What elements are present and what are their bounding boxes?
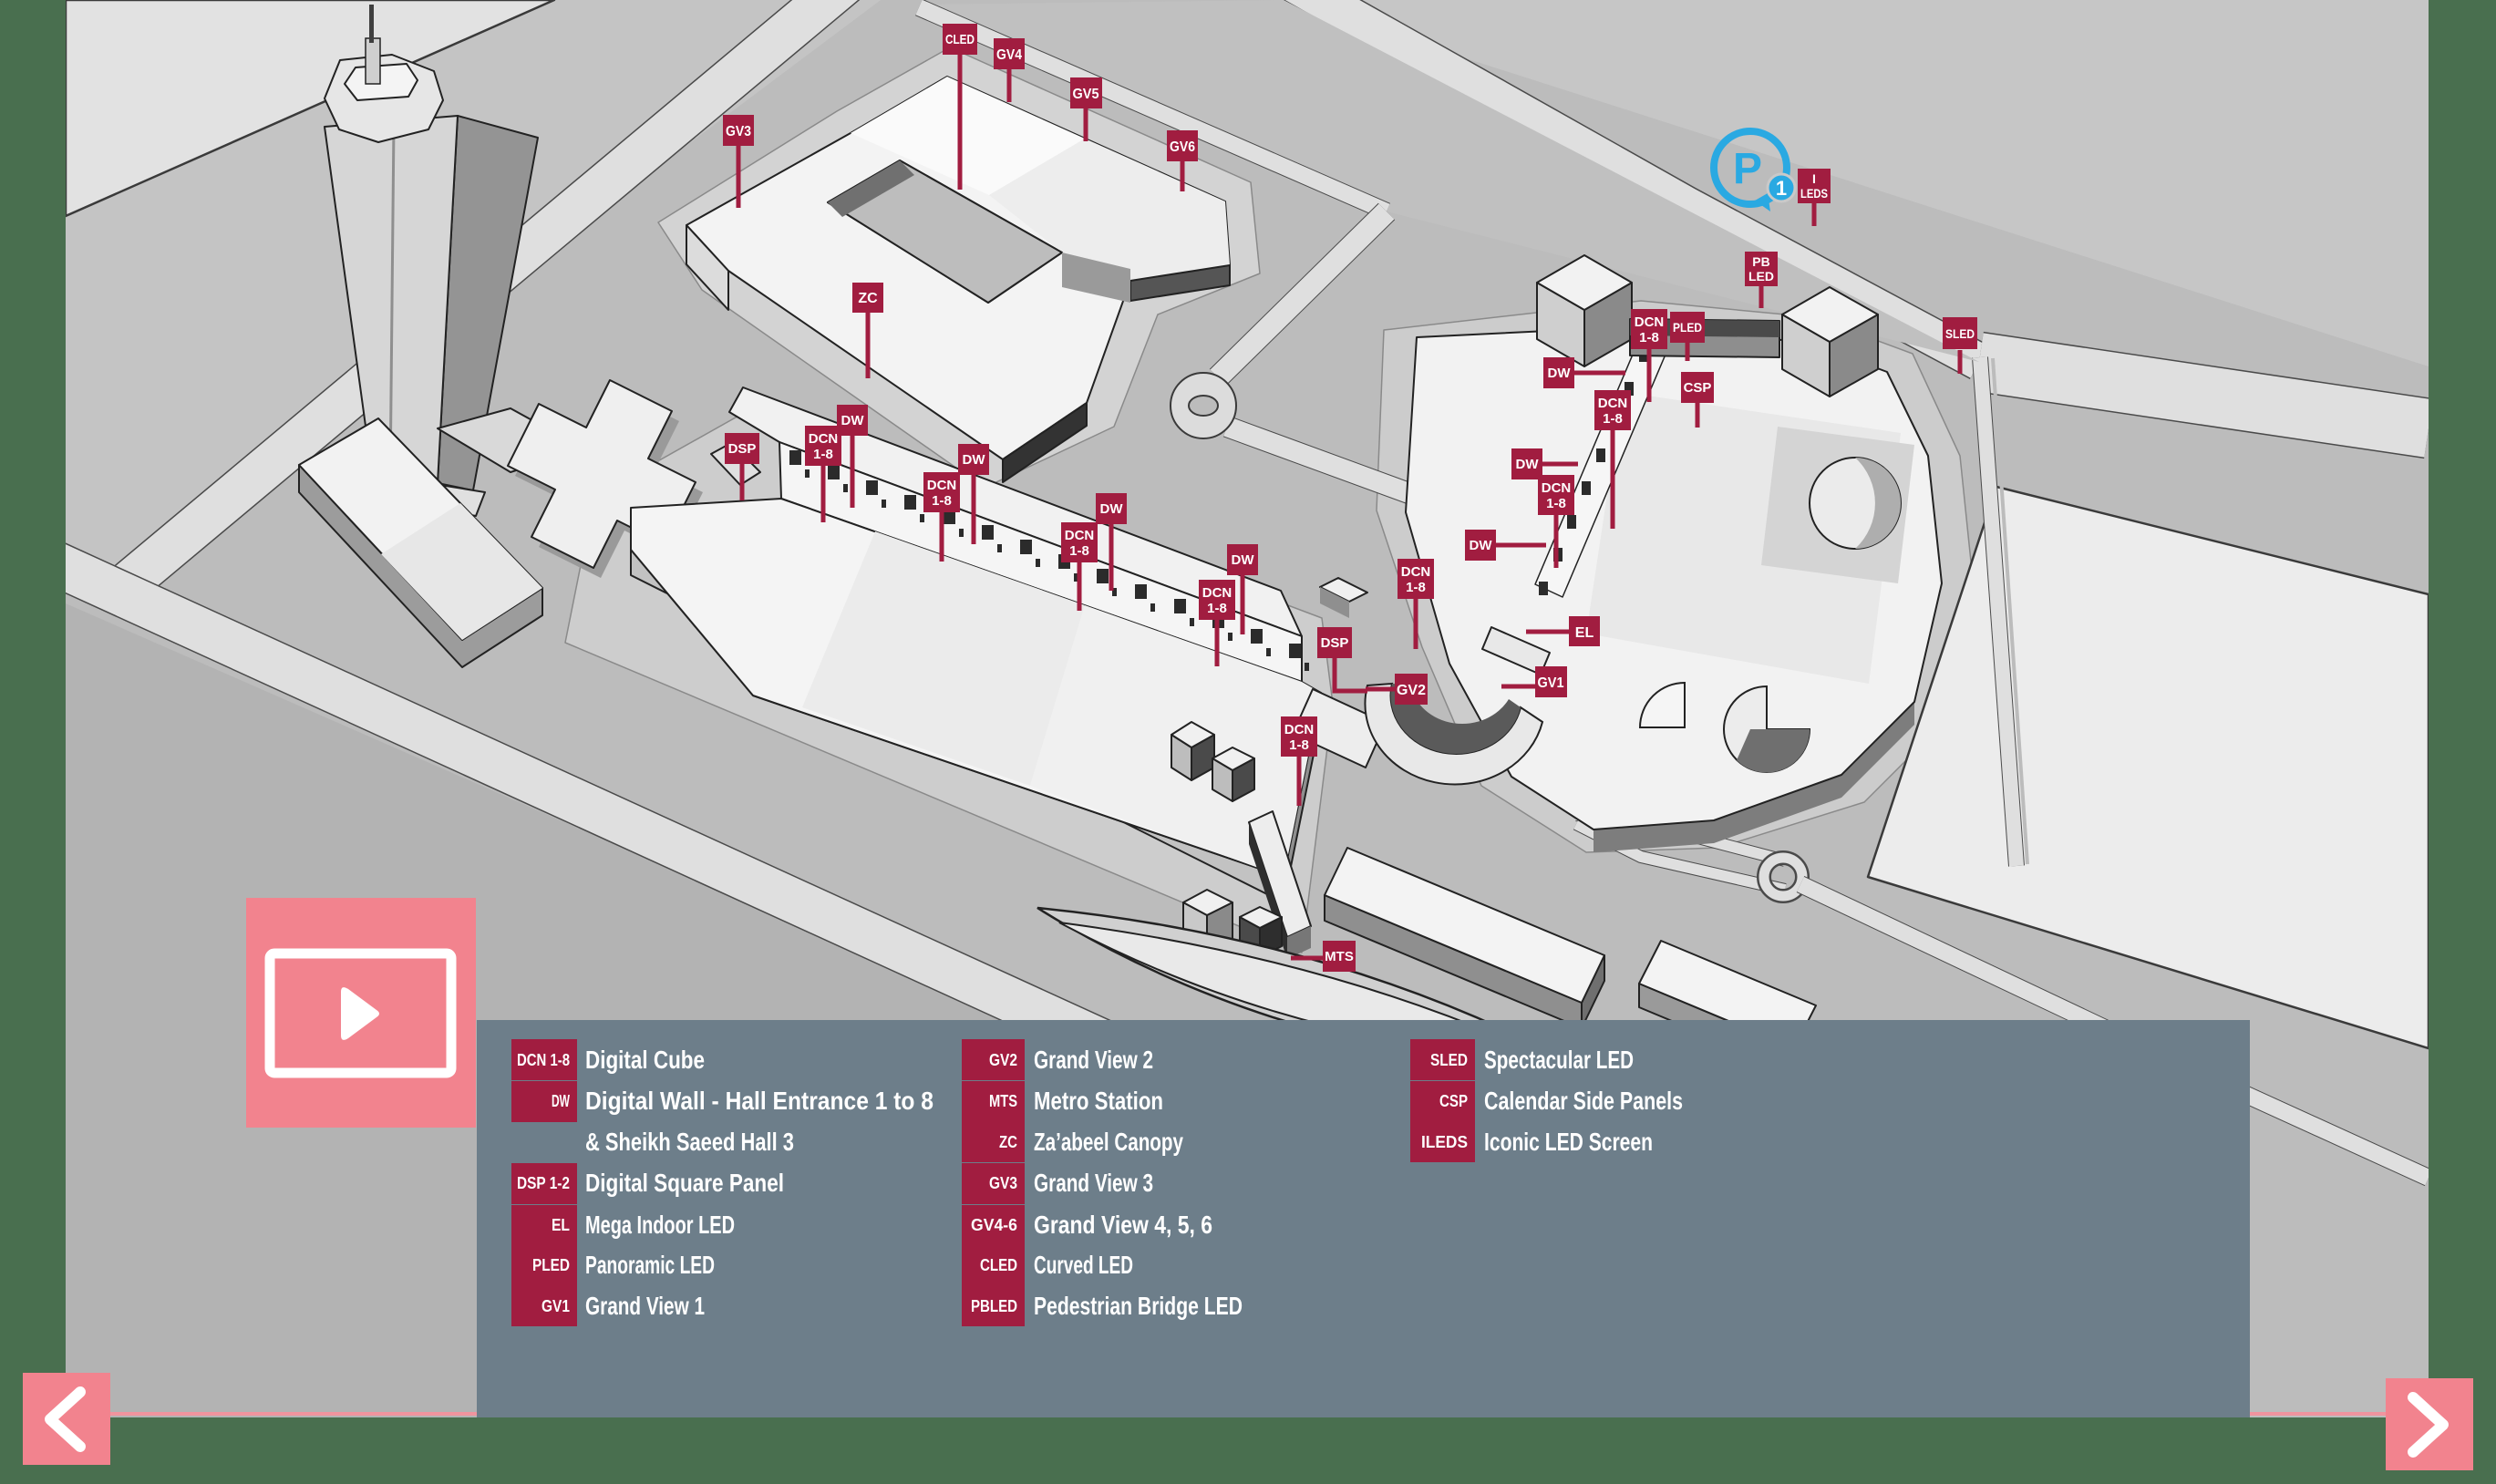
- svg-text:ILEDS: ILEDS: [1421, 1133, 1468, 1151]
- svg-text:Digital Square Panel: Digital Square Panel: [585, 1169, 784, 1197]
- svg-text:CLED: CLED: [945, 32, 975, 47]
- svg-text:Panoramic LED: Panoramic LED: [585, 1251, 715, 1279]
- svg-text:PLED: PLED: [532, 1256, 570, 1274]
- svg-text:Spectacular LED: Spectacular LED: [1484, 1046, 1634, 1074]
- svg-text:SLED: SLED: [1945, 326, 1975, 341]
- svg-text:1-8: 1-8: [1289, 737, 1309, 753]
- svg-text:DW: DW: [1516, 457, 1540, 472]
- svg-text:ZC: ZC: [858, 291, 878, 306]
- svg-text:1-8: 1-8: [1603, 411, 1623, 427]
- svg-text:DCN: DCN: [1401, 564, 1431, 580]
- svg-text:LEDS: LEDS: [1800, 186, 1828, 201]
- svg-text:Pedestrian Bridge LED: Pedestrian Bridge LED: [1034, 1292, 1243, 1320]
- svg-text:Mega Indoor LED: Mega Indoor LED: [585, 1211, 735, 1239]
- svg-text:DCN: DCN: [927, 478, 957, 493]
- svg-text:DCN: DCN: [1065, 528, 1095, 543]
- svg-text:PBLED: PBLED: [971, 1297, 1017, 1315]
- svg-text:Grand View 1: Grand View 1: [585, 1292, 705, 1320]
- svg-text:Grand View 3: Grand View 3: [1034, 1169, 1153, 1197]
- svg-text:1-8: 1-8: [1406, 580, 1426, 595]
- svg-text:1-8: 1-8: [1546, 496, 1566, 511]
- svg-text:GV2: GV2: [1397, 683, 1426, 698]
- svg-text:GV2: GV2: [989, 1051, 1017, 1069]
- svg-text:EL: EL: [1575, 625, 1594, 641]
- svg-text:Digital Wall - Hall Entrance 1: Digital Wall - Hall Entrance 1 to 8: [585, 1087, 933, 1115]
- svg-text:DW: DW: [552, 1092, 570, 1110]
- svg-text:SLED: SLED: [1430, 1051, 1468, 1069]
- svg-text:Grand View 4, 5, 6: Grand View 4, 5, 6: [1034, 1211, 1212, 1239]
- svg-text:DCN: DCN: [1284, 722, 1315, 737]
- svg-text:DW: DW: [841, 413, 865, 428]
- svg-text:GV1: GV1: [1538, 675, 1564, 691]
- svg-text:DCN: DCN: [1598, 396, 1628, 411]
- svg-text:GV4: GV4: [996, 47, 1022, 63]
- svg-text:DW: DW: [1470, 538, 1493, 553]
- svg-text:CSP: CSP: [1439, 1092, 1468, 1110]
- svg-text:DCN: DCN: [1202, 585, 1233, 601]
- svg-text:DW: DW: [1548, 366, 1572, 381]
- svg-text:1-8: 1-8: [1207, 601, 1227, 616]
- svg-text:& Sheikh Saeed Hall 3: & Sheikh Saeed Hall 3: [585, 1128, 794, 1156]
- svg-text:GV4-6: GV4-6: [971, 1216, 1017, 1234]
- svg-text:P: P: [1733, 145, 1762, 193]
- svg-text:Calendar Side Panels: Calendar Side Panels: [1484, 1087, 1683, 1115]
- svg-text:DCN 1-8: DCN 1-8: [517, 1051, 570, 1069]
- svg-text:1-8: 1-8: [1639, 330, 1659, 345]
- svg-text:Iconic LED Screen: Iconic LED Screen: [1484, 1128, 1653, 1156]
- svg-text:GV6: GV6: [1170, 139, 1195, 155]
- svg-text:DCN: DCN: [1635, 314, 1665, 330]
- svg-text:Digital Cube: Digital Cube: [585, 1046, 705, 1074]
- svg-text:ZC: ZC: [999, 1133, 1017, 1151]
- svg-text:PLED: PLED: [1673, 320, 1702, 335]
- svg-text:MTS: MTS: [989, 1092, 1017, 1110]
- svg-text:1-8: 1-8: [813, 447, 833, 462]
- svg-text:MTS: MTS: [1325, 949, 1354, 964]
- svg-text:Za’abeel Canopy: Za’abeel Canopy: [1034, 1128, 1183, 1156]
- svg-text:CLED: CLED: [980, 1256, 1017, 1274]
- svg-text:DW: DW: [1232, 552, 1255, 568]
- svg-text:DSP: DSP: [1321, 635, 1349, 651]
- svg-text:LED: LED: [1748, 269, 1774, 283]
- svg-text:DCN: DCN: [809, 431, 839, 447]
- svg-text:GV3: GV3: [726, 124, 751, 139]
- svg-text:DW: DW: [1100, 501, 1124, 517]
- svg-text:1-8: 1-8: [932, 493, 952, 509]
- svg-text:DSP 1-2: DSP 1-2: [517, 1174, 570, 1192]
- svg-text:1-8: 1-8: [1069, 543, 1089, 559]
- svg-text:GV1: GV1: [541, 1297, 570, 1315]
- svg-text:1: 1: [1776, 177, 1787, 200]
- svg-text:EL: EL: [552, 1216, 570, 1234]
- svg-text:GV3: GV3: [989, 1174, 1017, 1192]
- svg-text:DCN: DCN: [1542, 480, 1572, 496]
- svg-text:Grand View 2: Grand View 2: [1034, 1046, 1153, 1074]
- svg-text:Curved LED: Curved LED: [1034, 1251, 1133, 1279]
- svg-text:I: I: [1812, 171, 1816, 186]
- svg-text:GV5: GV5: [1073, 87, 1099, 102]
- svg-text:DSP: DSP: [728, 441, 757, 457]
- svg-text:PB: PB: [1752, 254, 1769, 269]
- svg-text:Metro Station: Metro Station: [1034, 1087, 1163, 1115]
- svg-text:CSP: CSP: [1684, 380, 1712, 396]
- svg-text:DW: DW: [963, 452, 986, 468]
